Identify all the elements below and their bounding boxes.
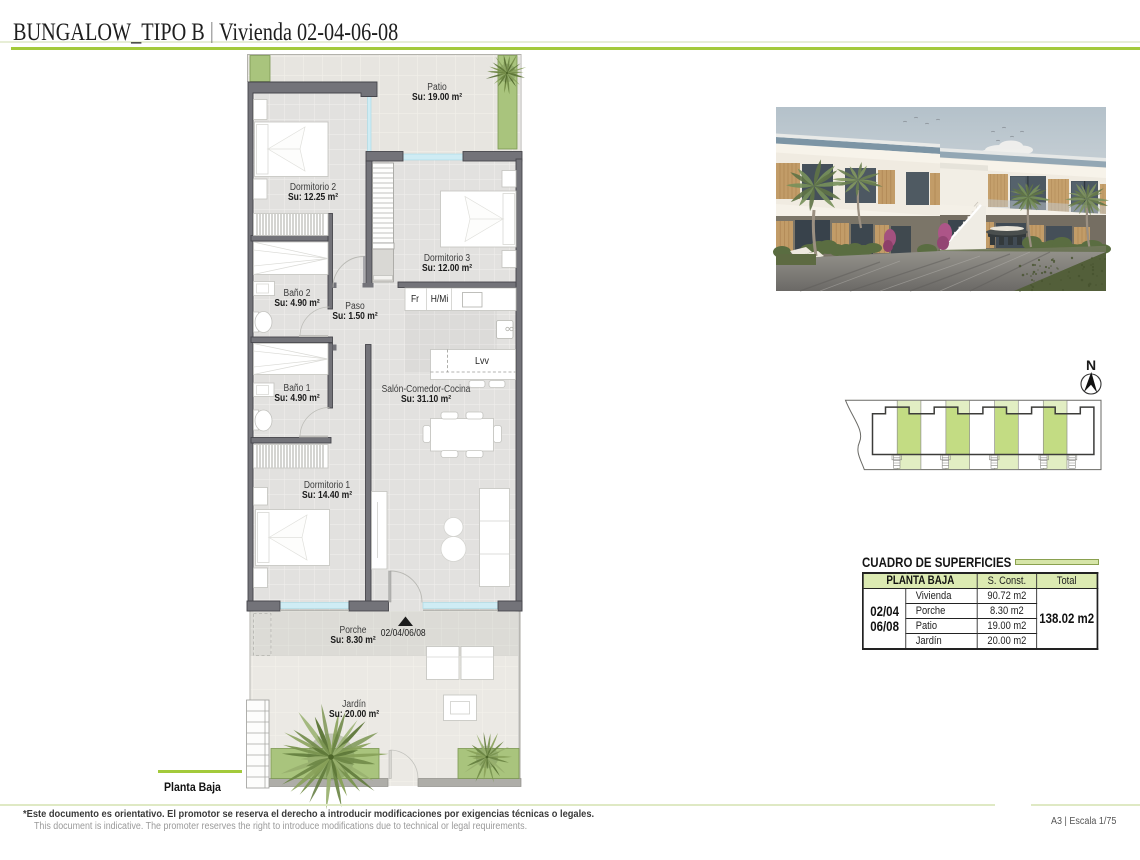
svg-text:N: N <box>1086 357 1096 373</box>
